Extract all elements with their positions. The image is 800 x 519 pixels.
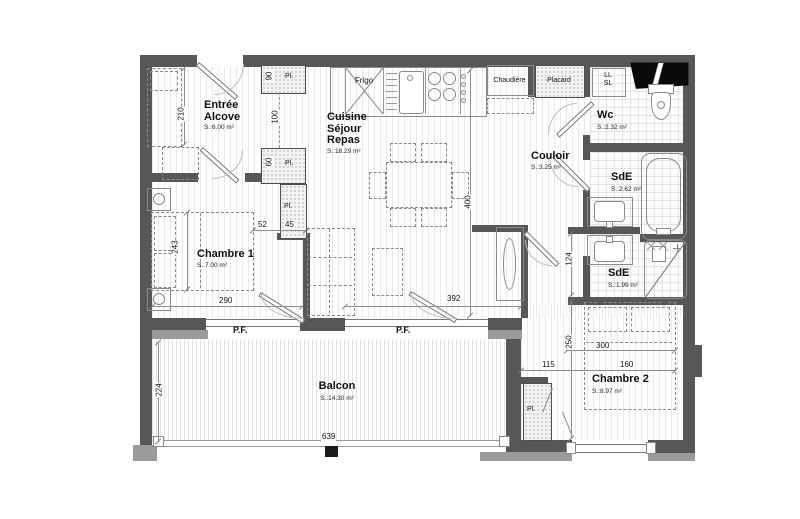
bed-c2-pillow-2 [631, 307, 670, 332]
sofa-cushion-line-h1 [308, 257, 352, 258]
closet-label-4: Pl. [527, 406, 535, 413]
wall-right-pillar [695, 345, 702, 377]
dim-300: 300 [595, 342, 610, 350]
burner-icon-2 [443, 72, 456, 85]
room-area-couloir: S.:3.25 m² [531, 164, 561, 171]
coffee-table-icon [372, 248, 403, 296]
window-label-pf1: P.F. [233, 325, 247, 335]
window-chambre2 [572, 444, 648, 453]
counter-divider-2 [383, 68, 384, 114]
fridge-icon [346, 68, 383, 114]
wall-accent-4 [648, 453, 695, 461]
dimline-300 [567, 350, 675, 351]
floor-plan: 210 90 100 60 52 45 243 290 400 392 124 … [0, 0, 800, 519]
dim-100: 100 [272, 109, 280, 124]
knob-icon-2 [461, 82, 466, 87]
washbasin-2-tap-icon [606, 236, 613, 243]
wall-sde1-sde2 [568, 227, 640, 234]
dimline-290 [152, 306, 302, 307]
wall-sde1-left-a [583, 152, 590, 160]
window-pf2 [345, 319, 488, 327]
burner-icon-4 [443, 88, 456, 101]
ottoman-icon [162, 147, 199, 180]
room-label-chambre1: Chambre 1 [197, 249, 254, 261]
washer-dryer-label: LL SL [594, 72, 622, 87]
closet-label-1: Pl. [285, 73, 293, 80]
closet-label-2: Pl. [285, 160, 293, 167]
wall-accent-2 [488, 330, 522, 339]
dim-224: 224 [156, 382, 164, 397]
bed-single-pillow [150, 71, 178, 91]
closet-label-3: Pl. [284, 203, 292, 210]
chair-icon-4 [421, 208, 447, 227]
room-label-cuisine: Cuisine Séjour Repas [327, 112, 367, 147]
counter-divider-3 [425, 68, 426, 114]
dimline-243 [187, 212, 188, 290]
placard-label: Placard [536, 77, 582, 85]
tv-screen-icon [503, 238, 516, 290]
burner-icon-3 [428, 88, 441, 101]
room-area-sde1: S.:2.62 m² [611, 186, 641, 193]
room-label-entree: Entrée Alcove [204, 100, 240, 123]
wall-lamp-icon-2 [660, 300, 668, 306]
sofa-cushion-line-h2 [308, 285, 352, 286]
room-label-couloir: Couloir [531, 151, 570, 163]
shower-plus-icon [673, 244, 681, 252]
washbasin-1-bowl [594, 201, 625, 222]
window-label-pf2: P.F. [396, 325, 410, 335]
room-area-wc: S.:2.32 m² [597, 124, 627, 131]
bathtub-tap-icon [656, 228, 671, 235]
room-area-sde2: S.:1.99 m² [608, 282, 638, 289]
dim-243: 243 [172, 239, 180, 254]
room-label-balcon: Balcon [306, 381, 368, 393]
room-area-chambre2: S.:8.97 m² [592, 388, 622, 395]
room-area-entree: S.:6.00 m² [204, 124, 234, 131]
washbasin-2-bowl [594, 241, 625, 262]
dim-639: 639 [321, 433, 336, 441]
wall-top-main [243, 55, 695, 67]
chair-icon-5 [369, 172, 386, 199]
shower-valve-icon-2 [659, 242, 667, 250]
boiler-label: Chaudière [487, 77, 532, 85]
sofa-cushion-line-v [329, 229, 330, 313]
dim-52: 52 [257, 221, 268, 229]
dimline-52-45 [253, 230, 306, 231]
room-area-cuisine: S.:18.29 m² [327, 148, 361, 155]
chair-icon-3 [390, 208, 416, 227]
wall-bottom-mid [300, 318, 345, 331]
dim-marker [325, 446, 338, 457]
dining-table-icon [386, 162, 452, 208]
window-c2-end-2 [646, 442, 656, 454]
dimline-115-160 [521, 370, 675, 371]
room-label-wc: Wc [597, 110, 614, 122]
burner-icon-1 [428, 72, 441, 85]
room-label-sde2: SdE [608, 268, 629, 280]
dim-124: 124 [566, 251, 574, 266]
dim-290: 290 [218, 297, 233, 305]
dimline-392 [345, 306, 521, 307]
dim-60: 60 [265, 157, 273, 168]
dim-160: 160 [619, 361, 634, 369]
side-table-plant-1 [153, 193, 165, 205]
shower-valve-icon-1 [647, 242, 655, 250]
room-label-chambre2: Chambre 2 [592, 374, 649, 386]
wall-accent-1 [152, 330, 208, 339]
fridge-label: Frigo [346, 76, 382, 85]
dim-210: 210 [178, 106, 186, 121]
dim-45: 45 [284, 221, 295, 229]
knob-icon-3 [461, 90, 466, 95]
bed-c1-pillow-2 [154, 253, 176, 288]
knob-icon-4 [461, 98, 466, 103]
room-area-balcon: S.:14.30 m² [306, 395, 368, 402]
chair-icon-2 [421, 143, 447, 162]
dim-115: 115 [541, 361, 556, 369]
wall-stub-left [133, 445, 157, 461]
dim-90: 90 [265, 71, 273, 82]
dim-250: 250 [566, 334, 574, 349]
toilet-drain-icon [657, 101, 665, 109]
dimline-400 [470, 70, 471, 316]
bed-c2-pillow-1 [588, 307, 627, 332]
sink-drainer-icon [386, 73, 397, 111]
wall-lamp-icon-1 [596, 300, 604, 306]
wall-wc-sde1 [583, 143, 695, 152]
room-label-sde1: SdE [611, 172, 632, 184]
boiler-clearance [487, 98, 534, 114]
dim-400: 400 [465, 194, 473, 209]
window-pf1 [206, 319, 300, 327]
wall-accent-3 [480, 452, 572, 461]
railing-end-2 [499, 436, 510, 447]
bathtub-inner-icon [646, 158, 681, 232]
chair-icon-1 [390, 143, 416, 162]
knob-icon-1 [461, 74, 466, 79]
window-c2-end-1 [566, 442, 576, 454]
room-area-chambre1: S.:7.00 m² [197, 262, 227, 269]
dim-392: 392 [446, 295, 461, 303]
sink-tap-icon [407, 75, 413, 81]
washbasin-1-tap-icon [606, 221, 613, 228]
